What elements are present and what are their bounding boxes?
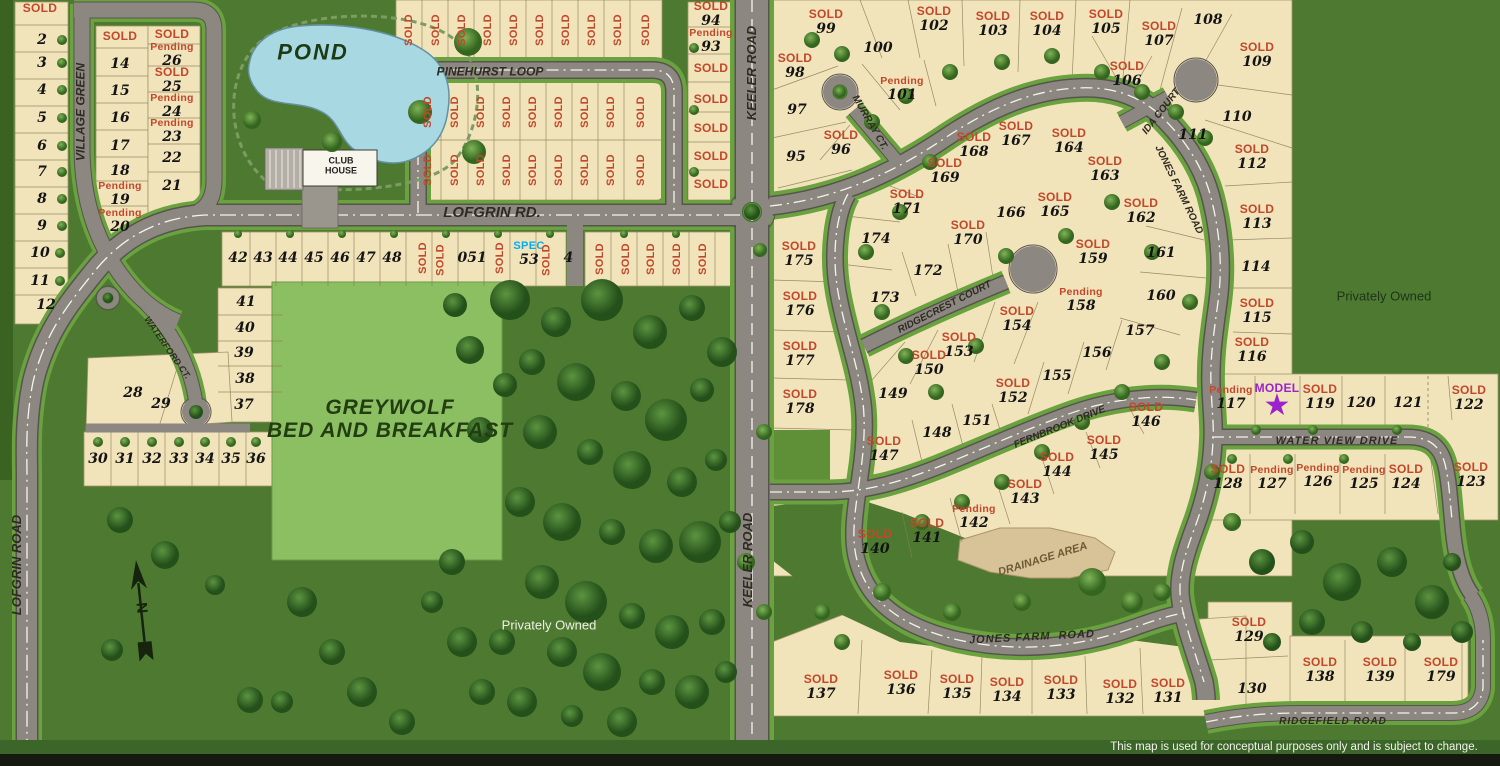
tree-icon [699, 609, 725, 635]
tree-icon [715, 661, 737, 683]
tree-icon [1223, 513, 1241, 531]
tree-icon [234, 230, 242, 238]
tree-icon [689, 105, 699, 115]
tree-icon [1034, 444, 1050, 460]
tree-icon [57, 85, 67, 95]
tree-icon [744, 204, 760, 220]
tree-icon [834, 634, 850, 650]
tree-icon [561, 705, 583, 727]
tree-icon [57, 194, 67, 204]
tree-icon [898, 88, 914, 104]
hedge-strip [0, 0, 13, 480]
tree-icon [456, 336, 484, 364]
tree-icon [611, 381, 641, 411]
tree-icon [1263, 633, 1281, 651]
tree-icon [1299, 609, 1325, 635]
tree-icon [147, 437, 157, 447]
tree-icon [679, 521, 721, 563]
tree-icon [205, 575, 225, 595]
tree-icon [998, 248, 1014, 264]
tree-icon [55, 276, 65, 286]
tree-icon [57, 35, 67, 45]
site-plan-map: N SOLD23456789101112SOLD1415161718Pendin… [0, 0, 1500, 766]
tree-icon [1339, 454, 1349, 464]
tree-icon [943, 603, 961, 621]
tree-icon [1443, 553, 1461, 571]
tree-icon [243, 111, 261, 129]
tree-icon [1251, 425, 1261, 435]
tree-icon [1283, 454, 1293, 464]
tree-icon [319, 639, 345, 665]
tree-icon [1351, 621, 1373, 643]
tree-icon [1154, 354, 1170, 370]
tree-icon [1134, 84, 1150, 100]
tree-icon [1249, 549, 1275, 575]
tree-icon [57, 141, 67, 151]
tree-icon [892, 204, 908, 220]
tree-icon [705, 449, 727, 471]
tree-icon [689, 167, 699, 177]
tree-icon [189, 405, 203, 419]
tree-icon [107, 507, 133, 533]
tree-icon [271, 691, 293, 713]
tree-icon [226, 437, 236, 447]
tree-icon [814, 604, 830, 620]
tree-icon [655, 615, 689, 649]
tree-icon [101, 639, 123, 661]
tree-icon [1227, 454, 1237, 464]
tree-icon [834, 86, 846, 98]
driveway [302, 186, 338, 228]
tree-icon [874, 304, 890, 320]
tree-icon [1153, 583, 1171, 601]
tree-icon [489, 629, 515, 655]
tree-icon [1078, 568, 1106, 596]
tree-icon [462, 140, 486, 164]
map-graphics: N [0, 0, 1500, 766]
tree-icon [543, 503, 581, 541]
tree-icon [1377, 547, 1407, 577]
tree-icon [1182, 294, 1198, 310]
tree-icon [151, 541, 179, 569]
tree-icon [494, 230, 502, 238]
tree-icon [873, 583, 891, 601]
tree-icon [719, 511, 741, 533]
tree-icon [942, 64, 958, 80]
tree-icon [645, 399, 687, 441]
tree-icon [834, 46, 850, 62]
tree-icon [1114, 384, 1130, 400]
tree-icon [804, 32, 820, 48]
parking-lot [265, 148, 303, 190]
tree-icon [994, 474, 1010, 490]
tree-icon [619, 603, 645, 629]
svg-text:N: N [132, 602, 150, 615]
tree-icon [1058, 228, 1074, 244]
tree-icon [1415, 585, 1449, 619]
tree-icon [898, 348, 914, 364]
tree-icon [1323, 563, 1361, 601]
tree-icon [858, 244, 874, 260]
tree-icon [914, 514, 930, 530]
tree-icon [347, 677, 377, 707]
tree-icon [93, 437, 103, 447]
tree-icon [541, 307, 571, 337]
tree-icon [490, 280, 530, 320]
tree-icon [922, 154, 938, 170]
tree-icon [467, 417, 493, 443]
tree-icon [1044, 48, 1060, 64]
tree-icon [507, 687, 537, 717]
tree-icon [322, 132, 342, 152]
tree-icon [287, 587, 317, 617]
tree-icon [547, 637, 577, 667]
tree-icon [672, 230, 680, 238]
tree-icon [447, 627, 477, 657]
tree-icon [1392, 425, 1402, 435]
tree-icon [557, 363, 595, 401]
tree-icon [675, 675, 709, 709]
tree-icon [389, 709, 415, 735]
privately-owned-label-left: Privately Owned [502, 618, 597, 633]
tree-icon [57, 58, 67, 68]
tree-icon [1308, 425, 1318, 435]
tree-icon [639, 669, 665, 695]
greywolf-parcel [272, 282, 502, 560]
tree-icon [581, 279, 623, 321]
tree-icon [338, 230, 346, 238]
tree-icon [954, 494, 970, 510]
tree-icon [1121, 591, 1143, 613]
tree-icon [620, 230, 628, 238]
tree-icon [756, 604, 772, 620]
tree-icon [1403, 633, 1421, 651]
tree-icon [57, 221, 67, 231]
tree-icon [599, 519, 625, 545]
tree-icon [1013, 593, 1031, 611]
tree-icon [994, 54, 1010, 70]
tree-icon [607, 707, 637, 737]
tree-icon [408, 100, 432, 124]
tree-icon [1104, 194, 1120, 210]
tree-icon [928, 384, 944, 400]
tree-icon [55, 248, 65, 258]
tree-icon [639, 529, 673, 563]
tree-icon [1168, 104, 1184, 120]
tree-icon [667, 467, 697, 497]
tree-icon [756, 424, 772, 440]
tree-icon [251, 437, 261, 447]
tree-icon [1094, 64, 1110, 80]
privately-owned-label-right: Privately Owned [1337, 289, 1432, 304]
tree-icon [443, 293, 467, 317]
tree-icon [613, 451, 651, 489]
tree-icon [525, 565, 559, 599]
tree-icon [421, 591, 443, 613]
tree-icon [690, 378, 714, 402]
tree-icon [864, 114, 880, 130]
tree-icon [390, 230, 398, 238]
tree-icon [174, 437, 184, 447]
tree-icon [519, 349, 545, 375]
tree-icon [679, 295, 705, 321]
tree-icon [707, 337, 737, 367]
tree-icon [633, 315, 667, 349]
tree-icon [689, 43, 699, 53]
tree-icon [57, 167, 67, 177]
tree-icon [1074, 414, 1090, 430]
tree-icon [523, 415, 557, 449]
tree-icon [120, 437, 130, 447]
tree-icon [546, 230, 554, 238]
tree-icon [454, 28, 482, 56]
clubhouse-building [303, 150, 377, 186]
tree-icon [753, 243, 767, 257]
tree-icon [1197, 130, 1213, 146]
tree-icon [493, 373, 517, 397]
tree-icon [1204, 464, 1220, 480]
disclaimer-text: This map is used for conceptual purposes… [1110, 741, 1478, 753]
bottom-black-strip [0, 754, 1500, 766]
tree-icon [577, 439, 603, 465]
tree-icon [737, 553, 755, 571]
tree-icon [442, 230, 450, 238]
tree-icon [469, 679, 495, 705]
tree-icon [968, 338, 984, 354]
tree-icon [583, 653, 621, 691]
tree-icon [200, 437, 210, 447]
tree-icon [505, 487, 535, 517]
tree-icon [237, 687, 263, 713]
tree-icon [1144, 244, 1160, 260]
tree-icon [1451, 621, 1473, 643]
tree-icon [1290, 530, 1314, 554]
tree-icon [286, 230, 294, 238]
tree-icon [103, 293, 113, 303]
tree-icon [57, 113, 67, 123]
tree-icon [439, 549, 465, 575]
